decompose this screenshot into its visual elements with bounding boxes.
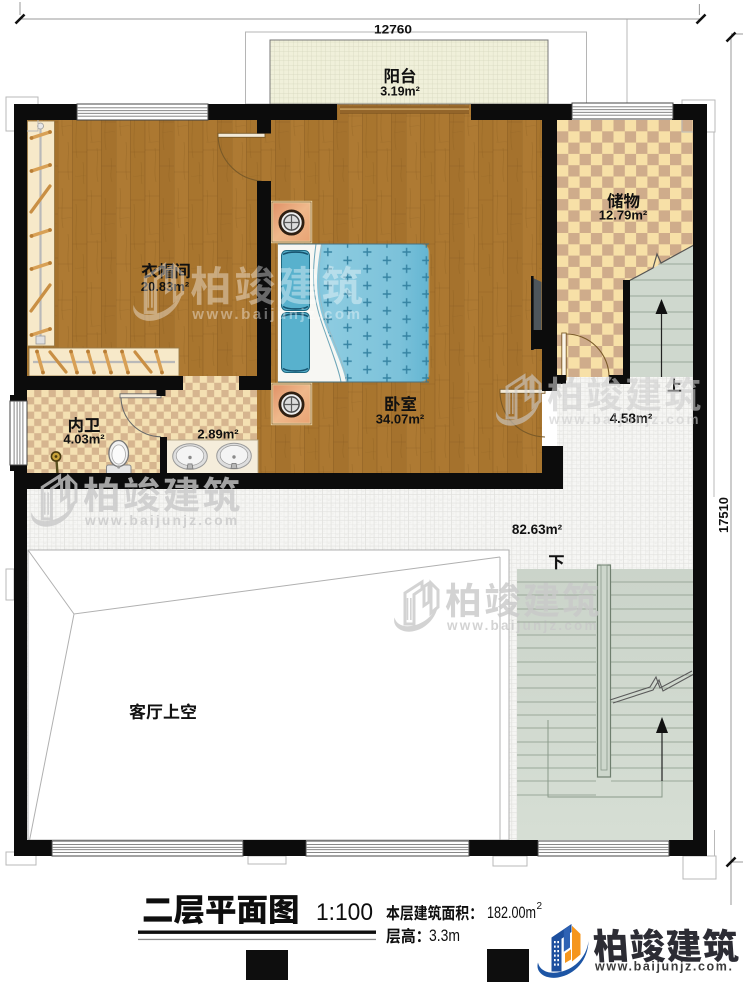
- svg-text:12760: 12760: [374, 23, 412, 37]
- svg-text:4.03m²: 4.03m²: [63, 432, 105, 447]
- svg-text:1:100: 1:100: [316, 899, 373, 926]
- svg-text:www.baijunjz.com: www.baijunjz.com: [446, 618, 599, 633]
- svg-text:www.baijunjz.com: www.baijunjz.com: [548, 412, 701, 427]
- svg-text:82.63m²: 82.63m²: [512, 522, 563, 537]
- svg-text:www.baijunjz.com: www.baijunjz.com: [191, 306, 362, 323]
- svg-text:www.baijunjz.com: www.baijunjz.com: [84, 513, 239, 528]
- svg-text:3.19m²: 3.19m²: [380, 85, 420, 99]
- svg-text:2: 2: [537, 901, 543, 912]
- svg-text:34.07m²: 34.07m²: [376, 412, 425, 427]
- svg-text:12.79m²: 12.79m²: [599, 208, 648, 223]
- svg-text:17510: 17510: [716, 497, 731, 533]
- svg-text:182.00m: 182.00m: [487, 903, 536, 922]
- svg-text:2.89m²: 2.89m²: [197, 427, 239, 442]
- svg-text:3.3m: 3.3m: [429, 926, 460, 945]
- svg-text:www.baijunjz.com.: www.baijunjz.com.: [594, 960, 734, 974]
